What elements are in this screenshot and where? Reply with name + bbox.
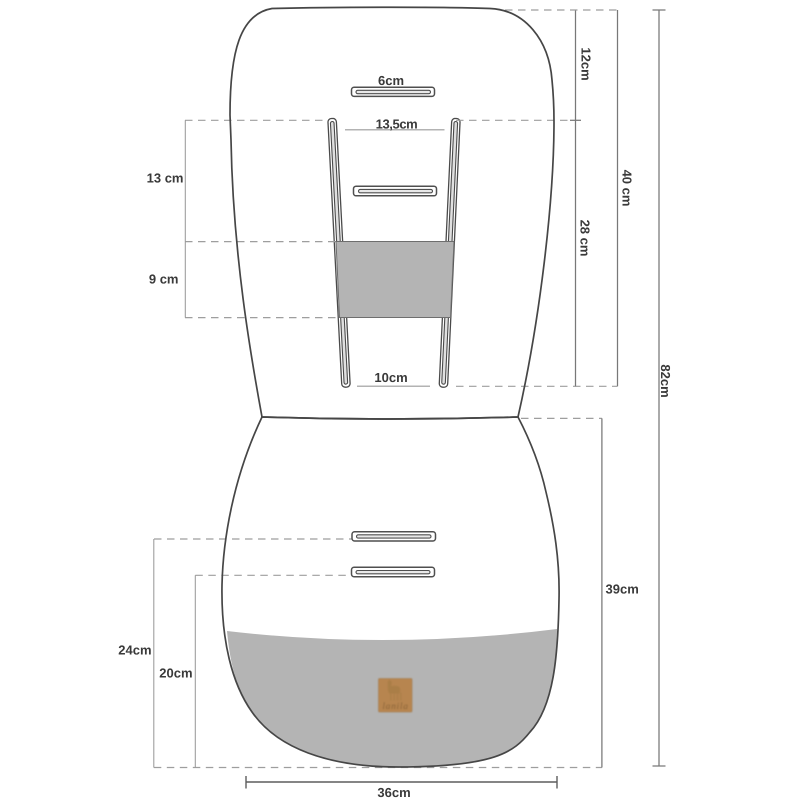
svg-text:13 cm: 13 cm [147,171,184,186]
svg-text:82cm: 82cm [658,364,673,397]
svg-text:40 cm: 40 cm [620,170,635,207]
svg-text:13,5cm: 13,5cm [376,117,418,132]
svg-text:36cm: 36cm [377,785,410,800]
svg-text:24cm: 24cm [118,643,151,658]
svg-text:28 cm: 28 cm [578,220,593,257]
svg-text:39cm: 39cm [606,582,639,597]
svg-text:6cm: 6cm [378,73,404,88]
svg-text:12cm: 12cm [579,47,594,80]
svg-text:10cm: 10cm [374,370,407,385]
svg-text:20cm: 20cm [159,666,192,681]
svg-text:9 cm: 9 cm [149,272,179,287]
svg-text:lanila: lanila [382,702,408,712]
